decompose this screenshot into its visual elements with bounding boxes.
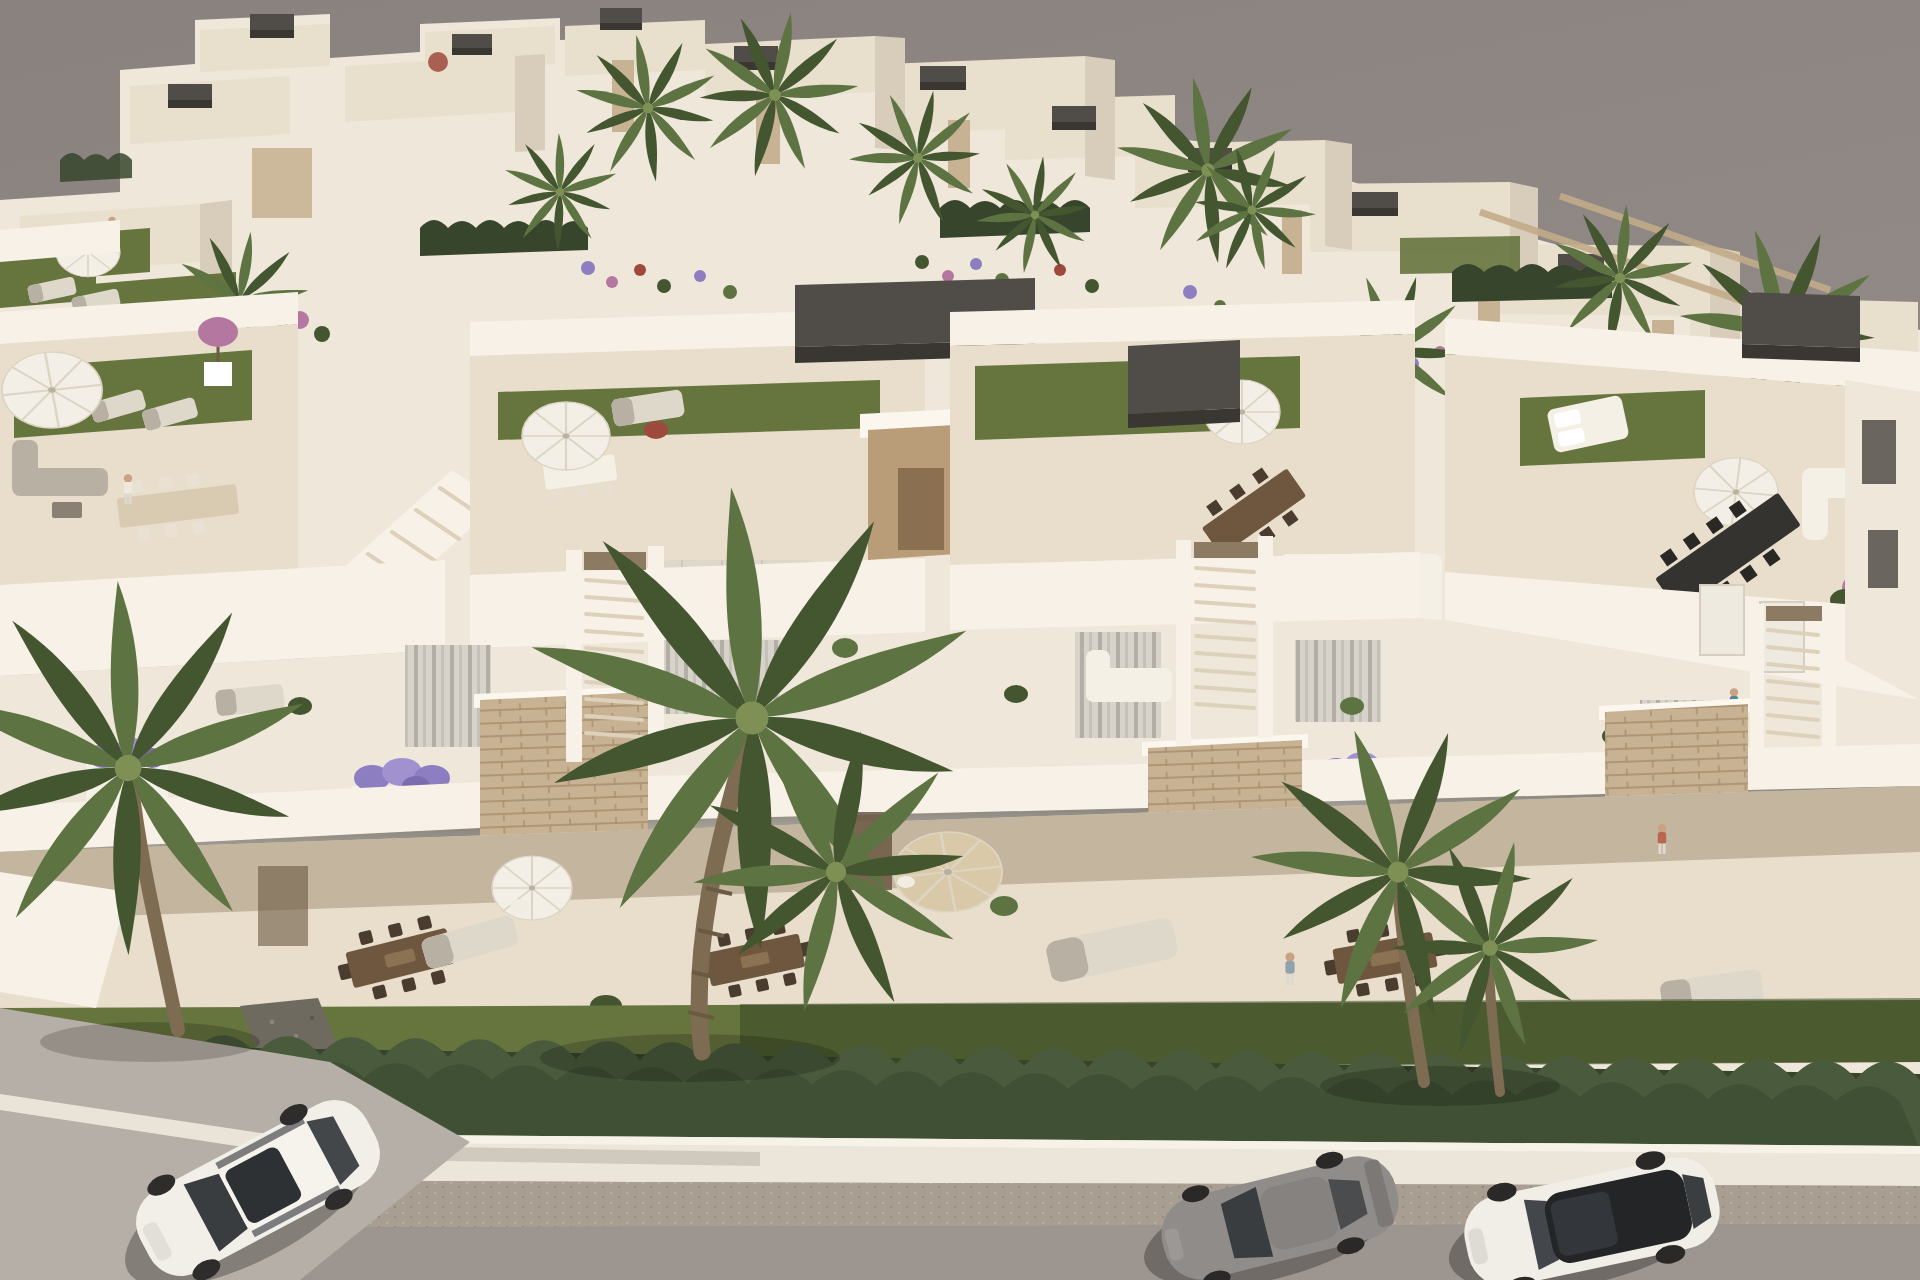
pergola-unit3 (1128, 340, 1240, 428)
pergola-unit4 (1742, 292, 1860, 362)
patio-door-2 (258, 866, 308, 946)
scene-svg (0, 0, 1920, 1280)
louver-window-1 (1700, 585, 1744, 655)
curtain-window-4 (1295, 640, 1381, 722)
patio-parasol-white (492, 856, 572, 920)
render-canvas (0, 0, 1920, 1280)
main-building-row (0, 278, 1920, 1017)
right-neighbour-wall (1845, 380, 1920, 700)
topleft-roof-terrace (0, 217, 121, 316)
roof-parasol-unit2 (522, 402, 610, 470)
